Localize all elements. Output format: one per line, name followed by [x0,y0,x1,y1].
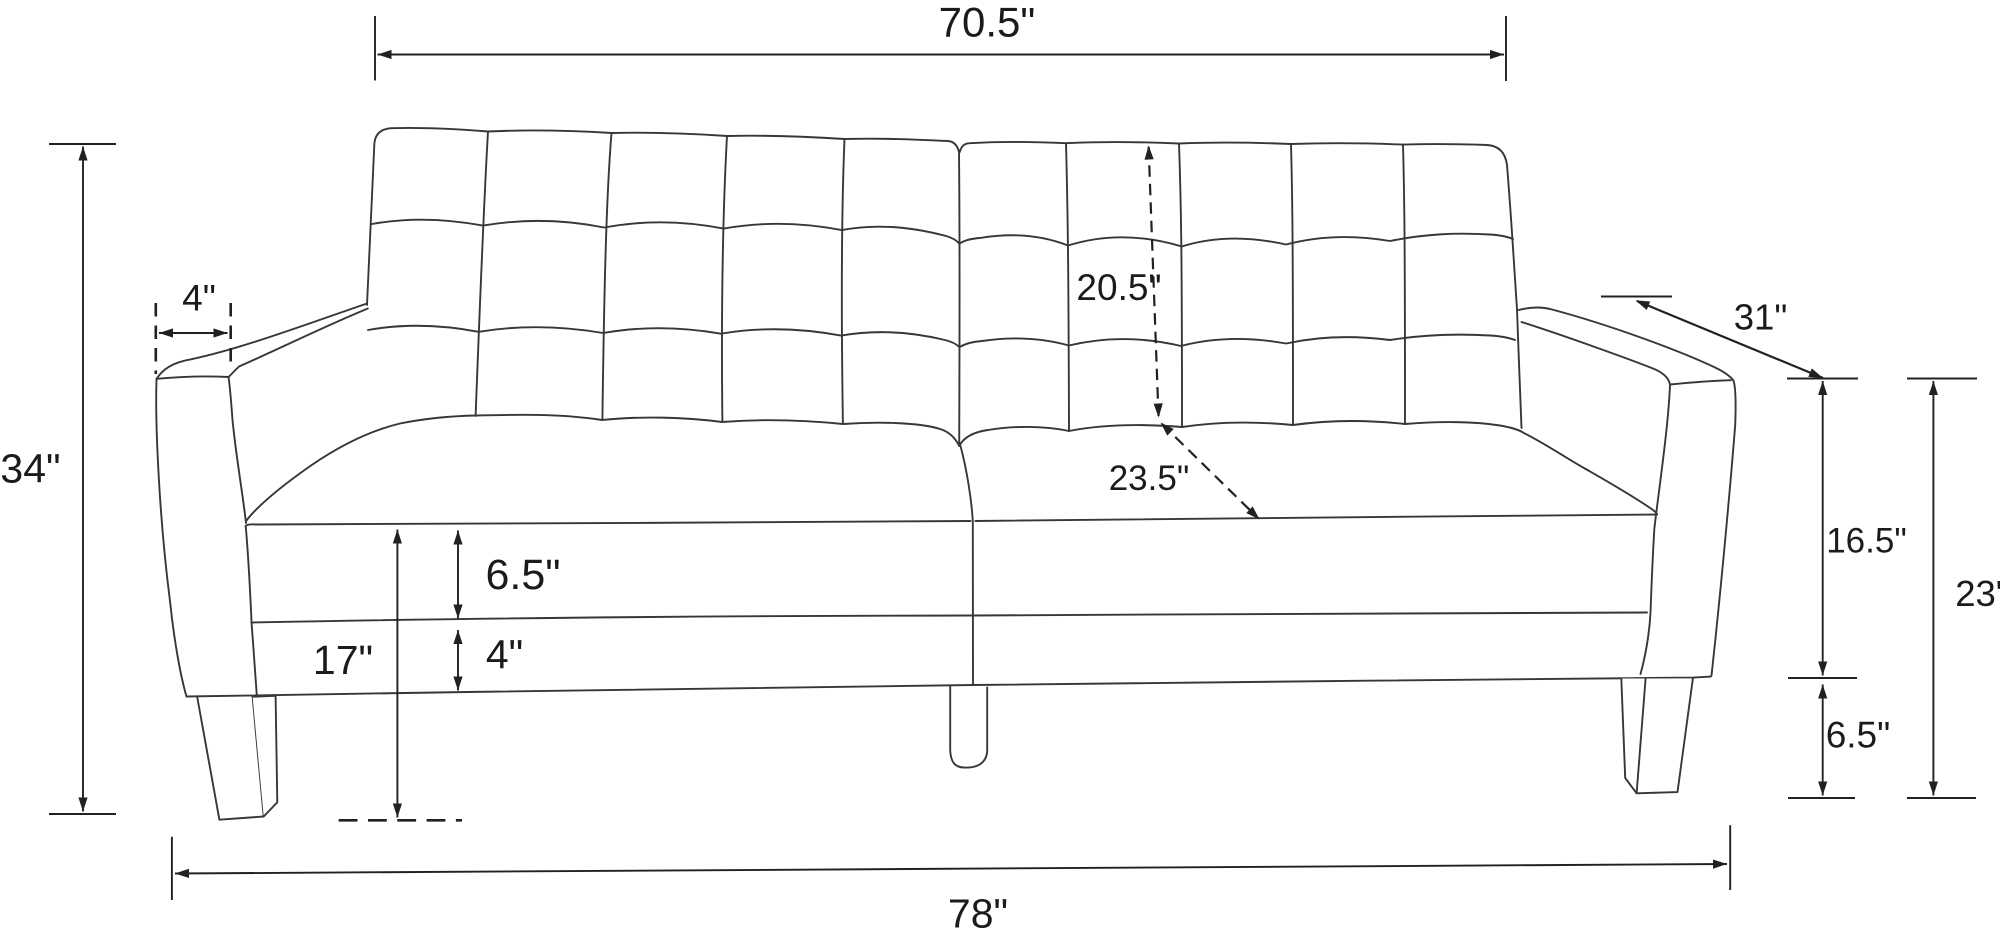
svg-text:6.5": 6.5" [485,551,560,599]
svg-text:23": 23" [1955,573,2000,614]
svg-text:23.5": 23.5" [1109,459,1190,498]
svg-text:16.5": 16.5" [1826,522,1907,561]
svg-text:17": 17" [313,637,373,683]
svg-text:34": 34" [0,446,60,492]
svg-text:70.5": 70.5" [939,0,1036,45]
svg-text:6.5": 6.5" [1826,715,1891,756]
svg-text:31": 31" [1734,297,1788,338]
svg-text:4": 4" [182,278,216,319]
svg-text:78": 78" [948,891,1008,937]
svg-text:20.5": 20.5" [1076,267,1161,308]
svg-text:4": 4" [486,632,523,678]
